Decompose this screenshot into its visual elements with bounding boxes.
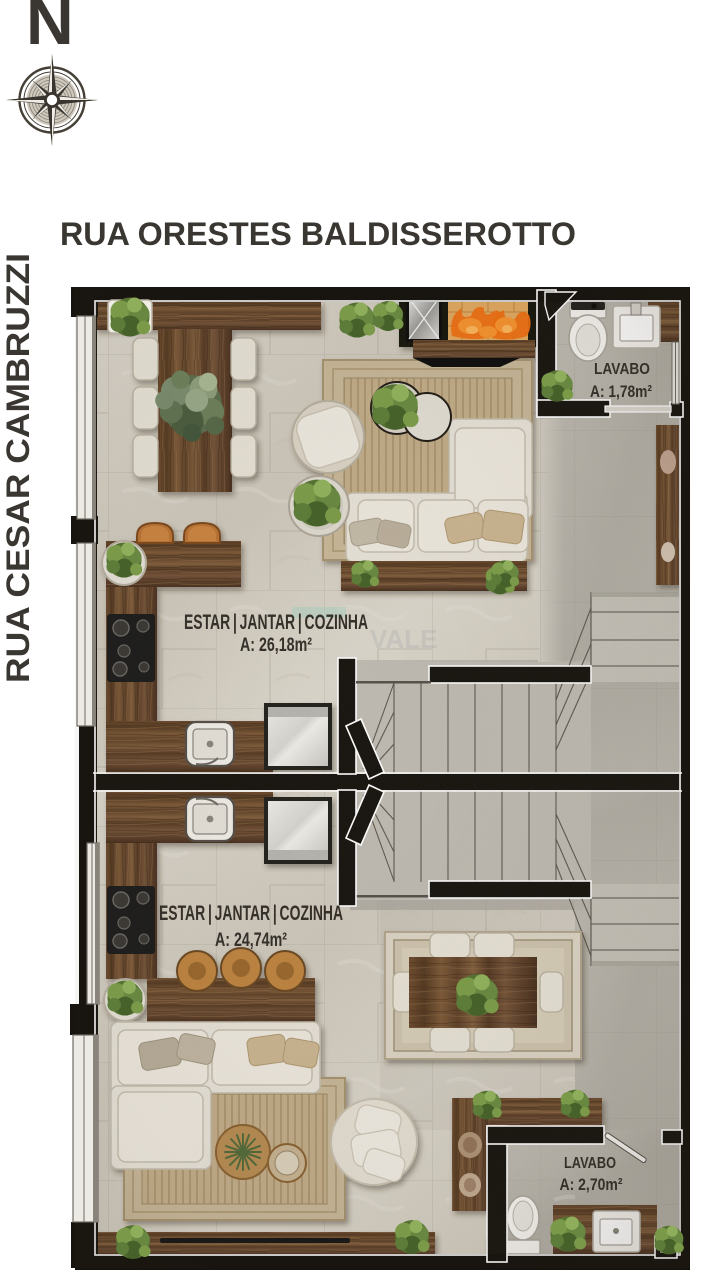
svg-text:VALE: VALE: [370, 624, 437, 654]
svg-text:ESTAR | JANTAR | COZINHA: ESTAR | JANTAR | COZINHA: [159, 902, 343, 925]
svg-text:LAVABO: LAVABO: [564, 1155, 616, 1172]
svg-text:N: N: [26, 0, 74, 58]
svg-text:A: 24,74m²: A: 24,74m²: [215, 930, 287, 951]
svg-text:ESTAR | JANTAR | COZINHA: ESTAR | JANTAR | COZINHA: [184, 611, 368, 634]
svg-text:A: 2,70m²: A: 2,70m²: [560, 1176, 623, 1194]
svg-text:A: 1,78m²: A: 1,78m²: [590, 383, 652, 401]
svg-text:A: 26,18m²: A: 26,18m²: [240, 635, 312, 656]
svg-text:LAVABO: LAVABO: [594, 361, 650, 378]
svg-text:RUA ORESTES BALDISSEROTTO: RUA ORESTES BALDISSEROTTO: [60, 216, 576, 252]
svg-text:RUA CESAR CAMBRUZZI: RUA CESAR CAMBRUZZI: [0, 253, 36, 683]
